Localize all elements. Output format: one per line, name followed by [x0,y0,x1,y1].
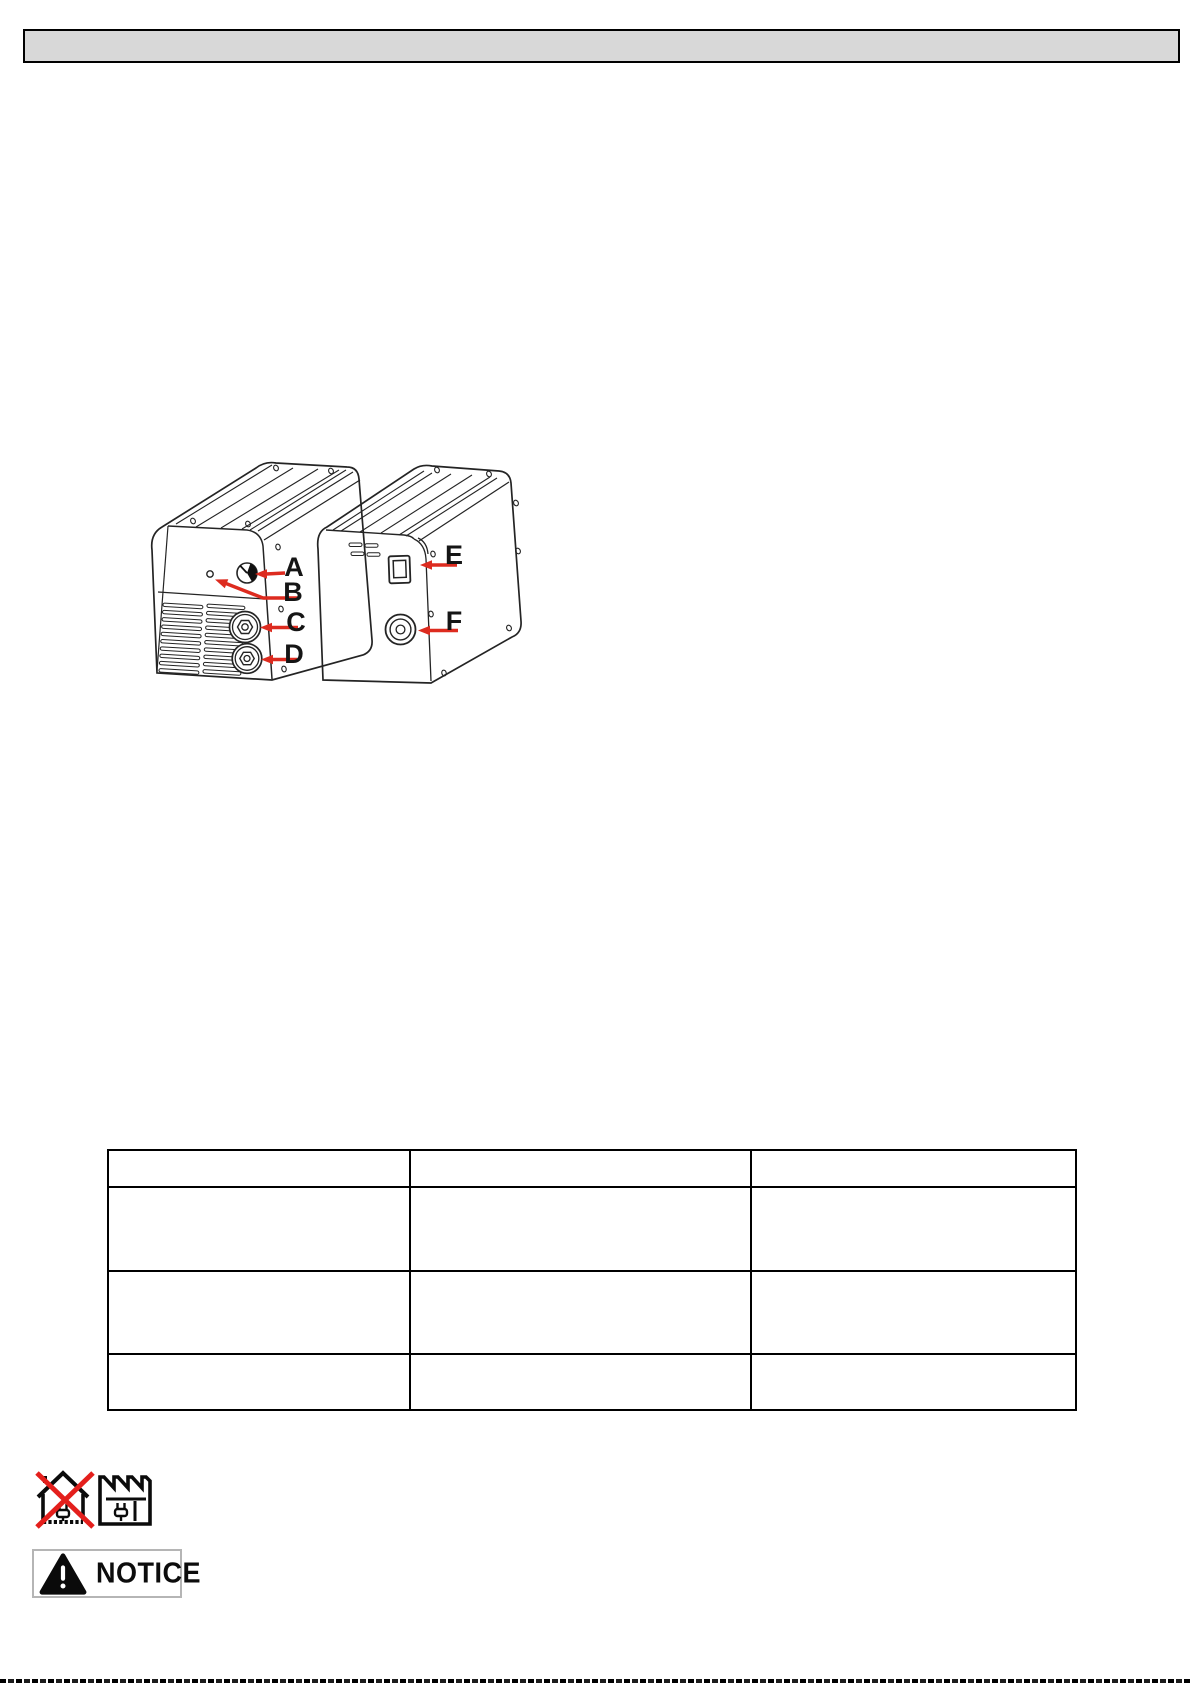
no-household-waste-icon [37,1473,93,1527]
table-row [108,1354,1076,1410]
power-switch [389,556,411,584]
vent-louvers [159,603,245,675]
table-row [108,1271,1076,1354]
spec-table [107,1149,1077,1411]
output-socket-d [232,644,262,674]
indicator-led [207,571,213,577]
disposal-icon [33,1466,157,1532]
figure-label-b: B [283,577,303,607]
section-header-bar [23,29,1180,63]
welder-rear-unit [318,465,522,683]
table-cell [108,1354,410,1410]
current-knob [237,563,257,583]
figure-label-c: C [286,607,306,637]
industrial-disposal-icon [100,1477,150,1524]
arrow-a [255,569,285,578]
table-cell [751,1187,1076,1271]
table-cell [410,1187,751,1271]
notice-text: NOTICE [96,1557,201,1590]
table-cell [751,1150,1076,1187]
notice-label: NOTICE [32,1549,182,1598]
welder-front-unit [152,463,372,680]
table-cell [410,1150,751,1187]
table-header-row [108,1150,1076,1187]
page-bottom-divider [0,1679,1191,1683]
manual-page: { "page": { "header_bar_color": "#d8d8d8… [0,0,1191,1685]
welder-figure-svg: A B C D E F [140,410,540,700]
table-cell [108,1150,410,1187]
table-cell [751,1271,1076,1354]
table-cell [410,1271,751,1354]
figure-welder-views: A B C D E F [140,410,540,700]
power-inlet [386,615,416,645]
screw-icons-rear-unit [428,466,521,676]
figure-label-d: D [284,639,304,669]
table-row [108,1187,1076,1271]
output-socket-c [230,612,261,643]
table-cell [751,1354,1076,1410]
table-cell [410,1354,751,1410]
figure-label-e: E [445,540,463,570]
table-cell [108,1271,410,1354]
figure-label-f: F [446,606,463,636]
table-cell [108,1187,410,1271]
warning-triangle-icon [39,1552,87,1596]
